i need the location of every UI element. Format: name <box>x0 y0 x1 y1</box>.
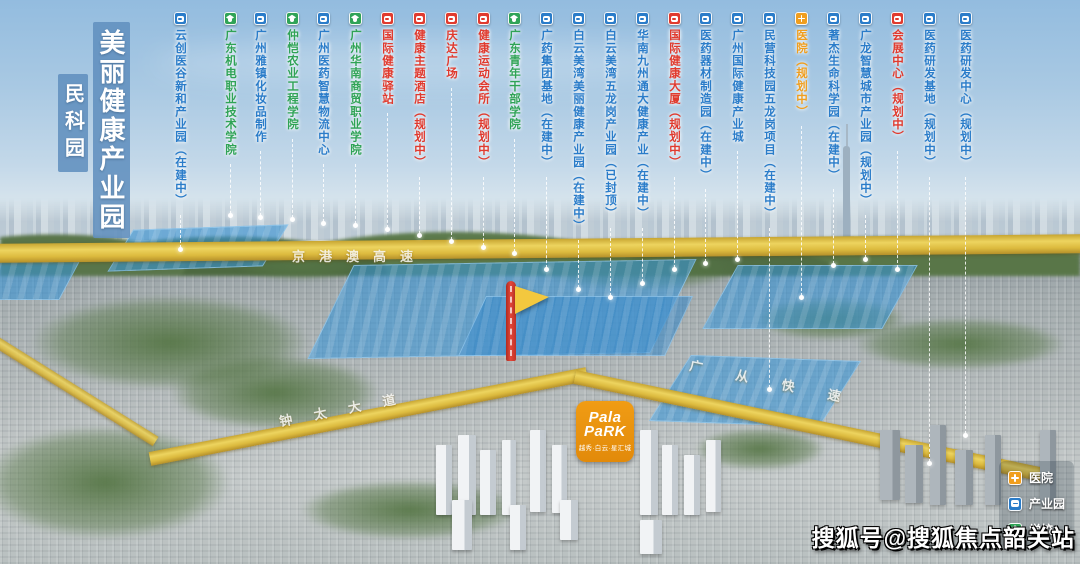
legend-label: 产业园 <box>1029 495 1065 512</box>
logo-text-line2: PaRK <box>584 425 626 439</box>
building-icon <box>1008 497 1022 511</box>
poster-title-main: 美丽健康产业园 <box>93 22 130 238</box>
cross-icon <box>1008 471 1022 485</box>
logo-subtitle: 越秀·白云·星汇城 <box>579 442 632 452</box>
location-flag-icon <box>515 286 549 314</box>
sohu-watermark: 搜狐号@搜狐焦点韶关站 <box>812 519 1075 553</box>
legend-label: 医院 <box>1029 469 1053 486</box>
poster-title-sub: 民科园 <box>58 74 88 172</box>
project-logo: Pala PaRK 越秀·白云·星汇城 <box>576 401 634 462</box>
legend-item: 医院 <box>1008 469 1065 486</box>
legend-item: 产业园 <box>1008 495 1065 512</box>
aerial-map-poster: 京港澳高速 钟太大道 广从快速 云创医谷新和产业园（在建中）广东机电职业技术学院… <box>0 0 1080 564</box>
road-label-jinggangao: 京港澳高速 <box>292 246 427 265</box>
cloud <box>150 40 710 86</box>
